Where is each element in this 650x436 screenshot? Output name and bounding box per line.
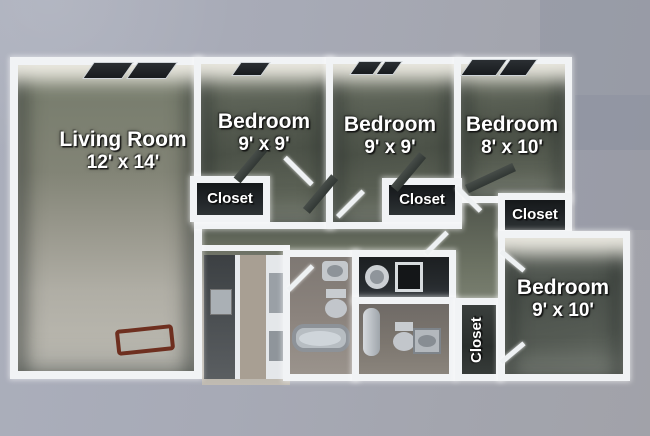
pantry-wall bbox=[240, 255, 266, 379]
room-dims: 9' x 9' bbox=[326, 137, 454, 159]
room-name: Bedroom bbox=[500, 276, 626, 300]
kitchen-corridor bbox=[202, 245, 290, 385]
room-name: Bedroom bbox=[196, 110, 332, 134]
floor-plan-image: Living Room 12' x 14' Bedroom 9' x 9' Be… bbox=[0, 0, 650, 436]
vanity-basin bbox=[418, 335, 436, 347]
door-swing bbox=[287, 264, 315, 292]
bathroom-right bbox=[352, 297, 456, 381]
label-living-room: Living Room 12' x 14' bbox=[38, 128, 208, 174]
background-shadow-step bbox=[575, 95, 650, 230]
bathroom-left bbox=[283, 250, 359, 381]
label-bedroom-2: Bedroom 9' x 9' bbox=[326, 113, 454, 159]
water-heater bbox=[363, 308, 380, 356]
toilet-tank bbox=[395, 322, 413, 331]
label-closet-4: Closet bbox=[468, 304, 490, 376]
room-name: Living Room bbox=[38, 128, 208, 152]
label-bedroom-1: Bedroom 9' x 9' bbox=[196, 110, 332, 156]
bathtub-basin bbox=[299, 331, 341, 346]
cabinet-column bbox=[204, 255, 240, 379]
room-dims: 9' x 9' bbox=[196, 134, 332, 156]
wood-frame bbox=[115, 324, 175, 356]
label-closet-1: Closet bbox=[192, 190, 268, 207]
toilet-bowl bbox=[393, 332, 415, 351]
appliance-panel bbox=[210, 289, 232, 315]
room-name: Bedroom bbox=[452, 113, 572, 137]
dryer bbox=[395, 262, 423, 292]
washer-door bbox=[370, 270, 384, 284]
sink-basin bbox=[327, 265, 343, 277]
label-bedroom-3: Bedroom 8' x 10' bbox=[452, 113, 572, 159]
toilet-tank bbox=[326, 289, 346, 298]
laundry-nook bbox=[352, 250, 456, 304]
room-living bbox=[10, 57, 202, 379]
room-dims: 9' x 10' bbox=[500, 300, 626, 322]
label-bedroom-4: Bedroom 9' x 10' bbox=[500, 276, 626, 322]
room-name: Bedroom bbox=[326, 113, 454, 137]
room-dims: 12' x 14' bbox=[38, 152, 208, 174]
room-dims: 8' x 10' bbox=[452, 137, 572, 159]
label-closet-2: Closet bbox=[384, 191, 460, 208]
toilet-bowl bbox=[325, 299, 347, 318]
label-closet-3: Closet bbox=[500, 206, 570, 223]
